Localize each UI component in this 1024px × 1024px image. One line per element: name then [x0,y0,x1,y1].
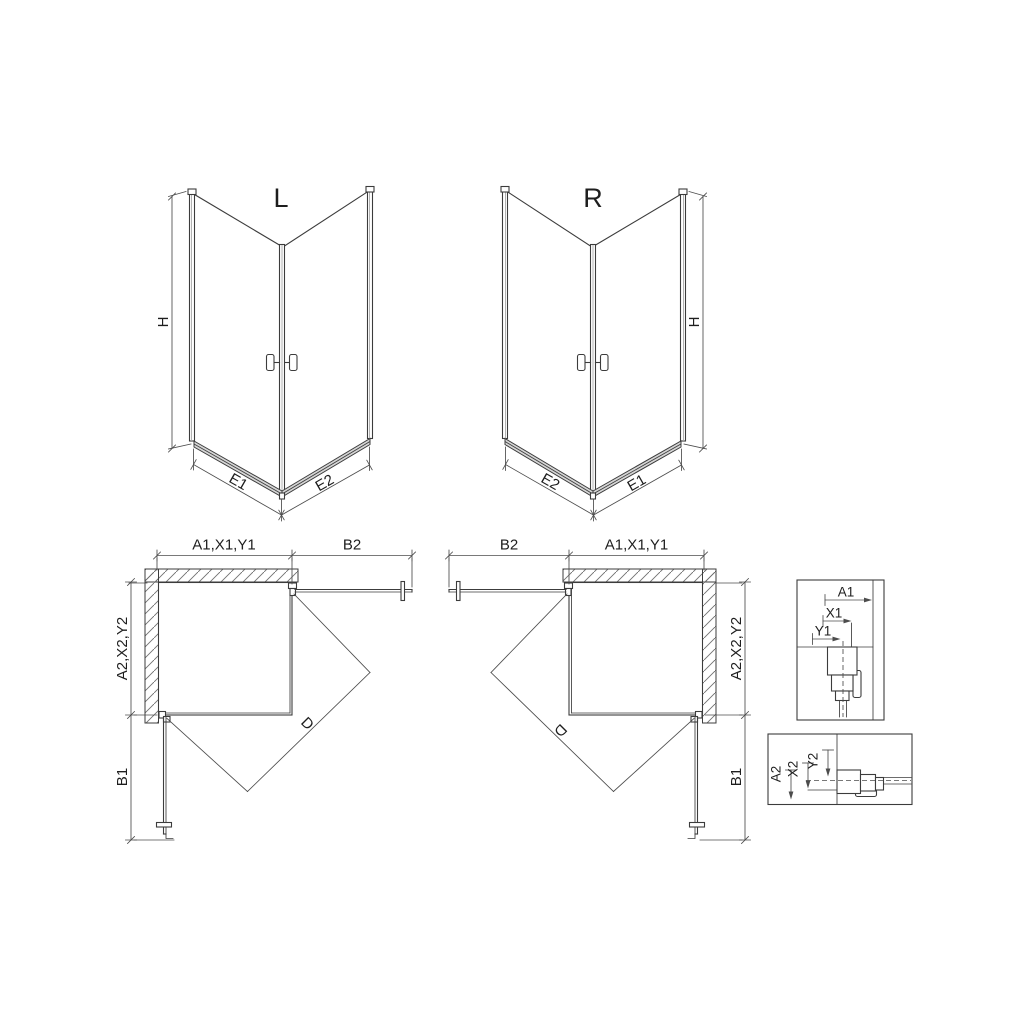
dim-label-a1x1y1-left: A1,X1,Y1 [192,537,255,554]
handle-knob-right [290,355,298,371]
dim-label-diagonal-right: D [550,720,570,740]
wall-hatched-top [563,569,716,582]
enclosure-footprint [159,583,293,716]
wall-profile-left [188,189,196,441]
profile-section [828,641,862,717]
door-swing-lines [491,594,694,792]
dim-label-h-right: H [686,317,703,328]
dim-label-x2: X2 [786,761,801,778]
wall-hatched-right [703,569,717,723]
corner-post [280,245,285,493]
wall-profile-right [679,189,687,441]
dim-label-a2x2y2-left: A2,X2,Y2 [114,617,131,680]
dim-label-a2: A2 [769,766,784,783]
dimension-height: H [155,192,191,453]
shower-enclosure-diagram: L [0,0,1024,1024]
dimension-e2: E2 [279,447,372,520]
dim-label-diagonal-left: D [297,714,317,734]
wall-hatched-top [145,569,298,582]
dim-label-y2: Y2 [806,753,821,770]
handle-knob-left [267,355,275,371]
detail-wall-profile-bottom: A2 X2 Y2 [768,734,912,805]
technical-drawing-page: L [0,0,1024,1024]
dim-label-x1: X1 [826,606,843,621]
dim-label-a1x1y1-right: A1,X1,Y1 [605,537,668,554]
handle-knob-left [578,355,586,371]
corner-post [591,245,596,493]
door-handle [690,823,705,828]
dim-label-h-left: H [155,317,172,328]
door-handle [457,582,461,601]
wall-profile-right [366,187,374,439]
dimension-y2: Y2 [806,750,834,777]
detail-wall-profile-top: A1 X1 Y1 [797,580,884,720]
door-handle [401,582,405,601]
wall-profile-left [501,187,509,439]
corner-foot [280,493,285,499]
dimension-e2: E2 [503,447,596,520]
dim-label-b2-left: B2 [343,537,361,554]
dimension-a1: A1 [825,585,872,606]
handle-knob-right [601,355,609,371]
plan-view-right: D B2 A1,X1,Y1 A2,X2,Y2 B1 [446,537,751,844]
door-handle [157,823,172,828]
dimension-height: H [684,192,707,453]
dim-label-a2x2y2-right: A2,X2,Y2 [728,617,745,680]
dim-label-b1-left: B1 [114,768,131,786]
view-title-left: L [273,183,288,213]
door-open-b2 [449,582,566,601]
door-open-b1 [688,717,705,839]
dim-label-b1-right: B1 [728,768,745,786]
perspective-view-left: L [155,183,374,521]
plan-view-left: D A1,X1,Y1 B2 A2,X2,Y2 B1 [114,537,416,844]
wall-hatched-left [145,569,159,723]
dim-label-a1: A1 [838,585,855,600]
profile-section [806,770,911,797]
view-title-right: R [583,183,603,213]
corner-foot [591,493,596,499]
dim-label-b2-right: B2 [500,537,518,554]
door-foot [166,834,173,839]
perspective-view-right: R [501,183,707,521]
dimension-y1: Y1 [813,624,841,645]
door-swing-lines [167,594,370,792]
door-foot [688,834,695,839]
dim-label-y1: Y1 [815,624,832,639]
door-open-b1 [157,717,174,839]
door-open-b2 [295,582,412,601]
enclosure-footprint [569,583,703,716]
